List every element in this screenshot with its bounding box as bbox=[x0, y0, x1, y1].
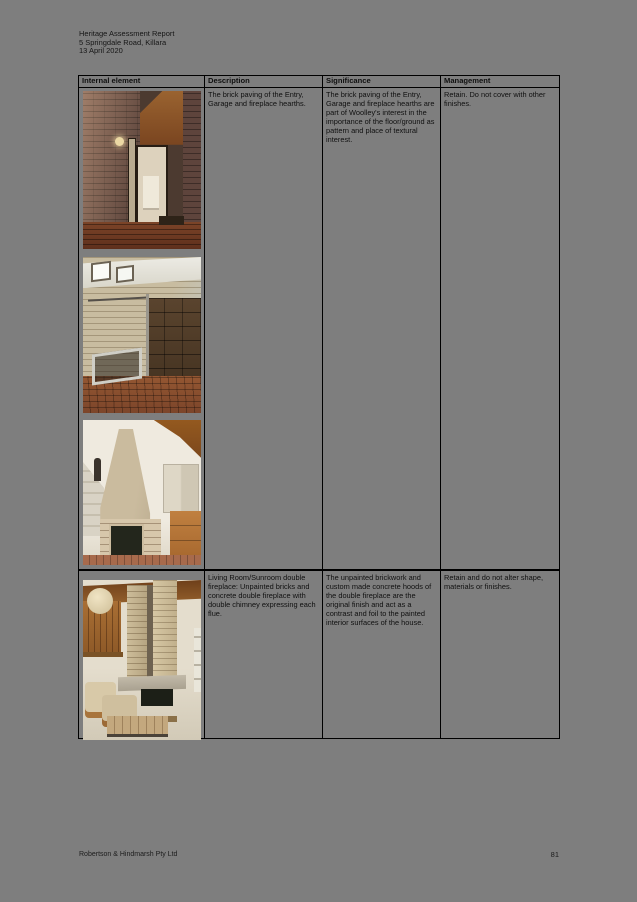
brick-chimney-flue bbox=[153, 580, 178, 682]
column-header-internal-element: Internal element bbox=[79, 76, 204, 87]
figure bbox=[94, 458, 101, 481]
clerestory-window bbox=[91, 260, 111, 281]
storage-boxes bbox=[163, 464, 198, 513]
footer-author: Robertson & Hindmarsh Pty Ltd bbox=[79, 851, 177, 858]
document-page: Heritage Assessment Report 5 Springdale … bbox=[0, 0, 637, 902]
wall-light bbox=[115, 137, 124, 146]
column-header-significance: Significance bbox=[322, 76, 440, 87]
door-sidelight bbox=[128, 138, 136, 226]
door-mat bbox=[159, 216, 185, 225]
timber-ceiling bbox=[154, 420, 201, 458]
door-track bbox=[88, 296, 149, 301]
table-row: Living Room/Sunroom double fireplace: Un… bbox=[79, 569, 559, 738]
column-header-description: Description bbox=[204, 76, 322, 87]
timber-shelf bbox=[83, 652, 123, 657]
cell-significance: The unpainted brickwork and custom made … bbox=[322, 571, 440, 738]
brick-hearth bbox=[83, 555, 201, 565]
firebox bbox=[141, 689, 173, 707]
header-line-date: 13 April 2020 bbox=[79, 47, 174, 56]
cell-description: Living Room/Sunroom double fireplace: Un… bbox=[204, 571, 322, 738]
photo-living-room-fireplace bbox=[83, 580, 201, 740]
cell-photos-brick-paving bbox=[79, 88, 204, 569]
document-header: Heritage Assessment Report 5 Springdale … bbox=[79, 30, 174, 56]
timber-garage-door bbox=[147, 298, 201, 382]
cell-photos-double-fireplace bbox=[79, 571, 204, 738]
pendant-lamp bbox=[87, 588, 113, 614]
door-guide-rail bbox=[146, 294, 150, 384]
brick-chimney-flue bbox=[127, 585, 147, 681]
photo-garage bbox=[83, 257, 201, 413]
footer-page-number: 81 bbox=[543, 850, 559, 859]
photo-entry-hall bbox=[83, 91, 201, 249]
leaning-frame bbox=[92, 347, 142, 385]
brick-paving-floor bbox=[83, 222, 201, 249]
photo-hearth-fireplace bbox=[83, 420, 201, 565]
window bbox=[194, 628, 201, 692]
glazed-entry-door bbox=[136, 145, 168, 227]
cell-management: Retain. Do not cover with other finishes… bbox=[440, 88, 559, 569]
heritage-elements-table: Internal element Description Significanc… bbox=[78, 75, 560, 739]
clerestory-window bbox=[116, 265, 134, 283]
table-header-row: Internal element Description Significanc… bbox=[79, 76, 559, 88]
cell-description: The brick paving of the Entry, Garage an… bbox=[204, 88, 322, 569]
cell-significance: The brick paving of the Entry, Garage an… bbox=[322, 88, 440, 569]
column-header-management: Management bbox=[440, 76, 559, 87]
table-row: The brick paving of the Entry, Garage an… bbox=[79, 88, 559, 569]
timber-joinery bbox=[170, 511, 201, 555]
cell-management: Retain and do not alter shape, materials… bbox=[440, 571, 559, 738]
bench-seat bbox=[107, 716, 168, 737]
